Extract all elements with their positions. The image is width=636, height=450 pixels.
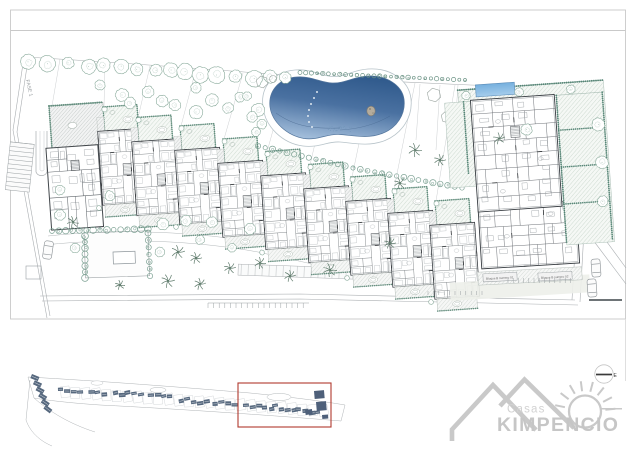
svg-text:KIMPENCIO: KIMPENCIO [497, 414, 619, 436]
